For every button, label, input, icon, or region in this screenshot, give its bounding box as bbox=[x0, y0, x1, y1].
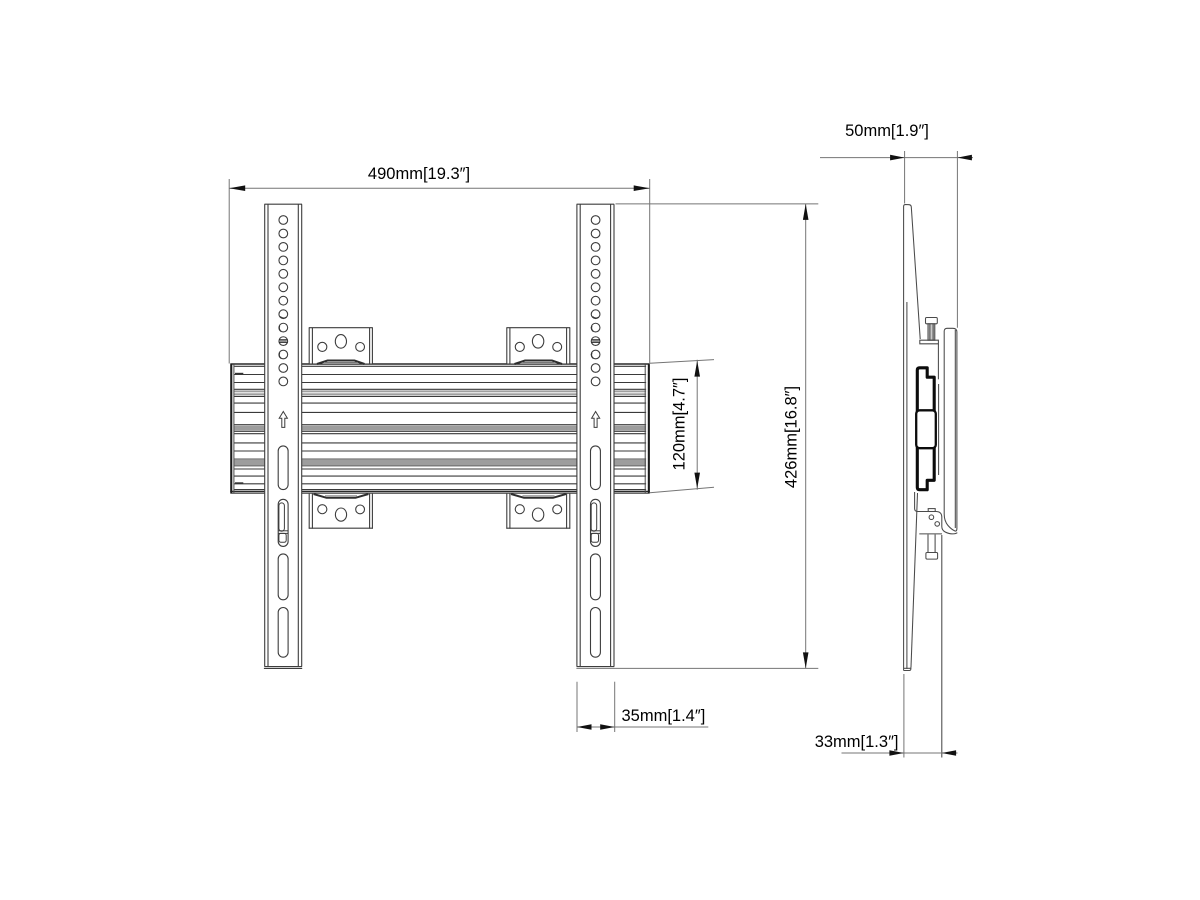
svg-text:426mm[16.8″]: 426mm[16.8″] bbox=[783, 386, 801, 488]
svg-text:120mm[4.7″]: 120mm[4.7″] bbox=[671, 378, 689, 471]
svg-text:490mm[19.3″]: 490mm[19.3″] bbox=[368, 165, 470, 183]
svg-text:50mm[1.9″]: 50mm[1.9″] bbox=[845, 122, 929, 140]
svg-text:35mm[1.4″]: 35mm[1.4″] bbox=[622, 707, 706, 725]
svg-text:33mm[1.3″]: 33mm[1.3″] bbox=[815, 733, 899, 751]
